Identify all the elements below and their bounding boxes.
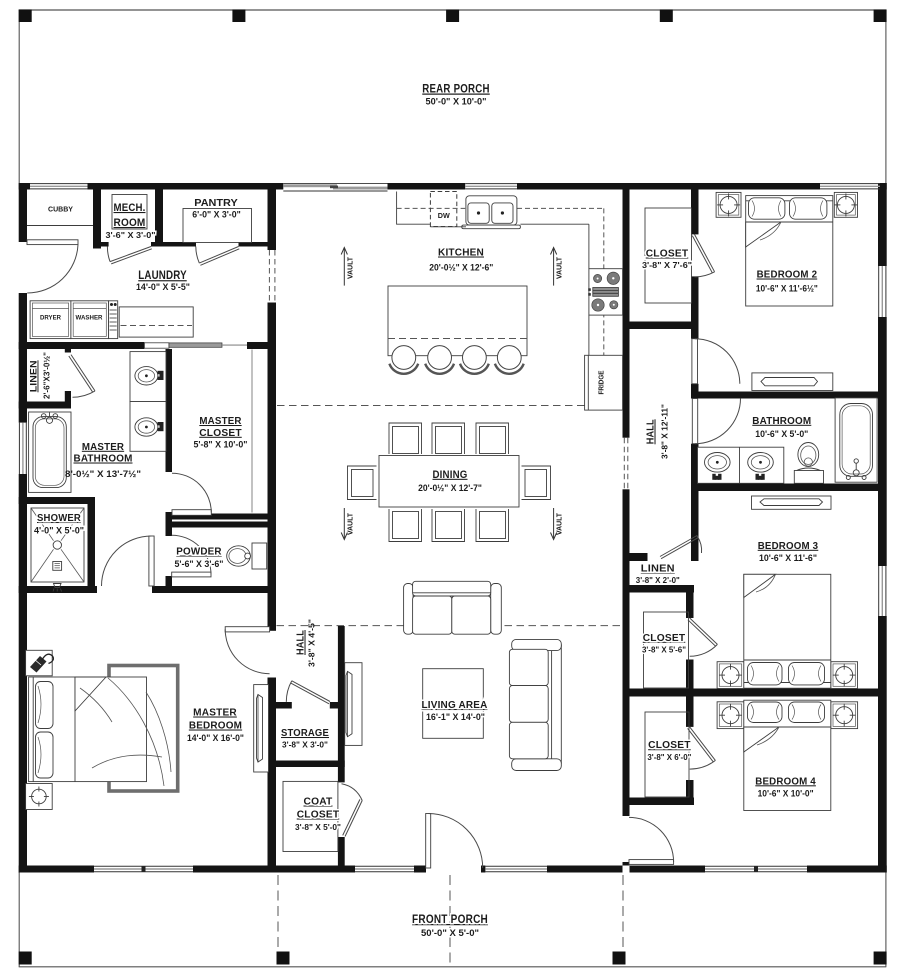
svg-text:2'-6"X3'-0½": 2'-6"X3'-0½"	[43, 352, 52, 399]
svg-text:20'-0½" X 12'-6": 20'-0½" X 12'-6"	[429, 263, 493, 273]
svg-text:BEDROOM 2: BEDROOM 2	[757, 270, 818, 281]
svg-text:STORAGE: STORAGE	[281, 728, 329, 739]
svg-text:CLOSET: CLOSET	[648, 740, 691, 751]
svg-text:14'-0" X 5'-5": 14'-0" X 5'-5"	[136, 282, 190, 293]
svg-text:MECH.: MECH.	[114, 202, 146, 214]
svg-text:CLOSET: CLOSET	[643, 633, 686, 644]
svg-text:CLOSET: CLOSET	[297, 810, 340, 821]
svg-text:DW: DW	[438, 213, 450, 220]
svg-text:REAR PORCH: REAR PORCH	[422, 82, 490, 96]
svg-text:VAULT: VAULT	[347, 256, 354, 279]
svg-text:4'-0" X 5'-0": 4'-0" X 5'-0"	[34, 526, 84, 536]
svg-text:HALL: HALL	[646, 419, 657, 444]
svg-text:COAT: COAT	[304, 797, 333, 808]
svg-text:3'-8" X 5'-6": 3'-8" X 5'-6"	[642, 646, 686, 655]
svg-text:POWDER: POWDER	[176, 547, 222, 558]
svg-text:DRYER: DRYER	[40, 315, 61, 322]
svg-text:3'-8" X 5'-0": 3'-8" X 5'-0"	[295, 823, 341, 832]
svg-text:VAULT: VAULT	[557, 256, 564, 279]
svg-text:10'-6" X 11'-6": 10'-6" X 11'-6"	[759, 553, 817, 563]
svg-text:3'-8" X 3'-0": 3'-8" X 3'-0"	[282, 741, 328, 750]
svg-text:14'-0" X 16'-0": 14'-0" X 16'-0"	[187, 733, 244, 743]
svg-text:FRONT PORCH: FRONT PORCH	[412, 912, 488, 926]
svg-text:3'-8" X 12'-11": 3'-8" X 12'-11"	[661, 404, 670, 459]
svg-text:3'-8" X 6'-0": 3'-8" X 6'-0"	[647, 753, 691, 762]
svg-text:LINEN: LINEN	[641, 564, 675, 575]
svg-text:VAULT: VAULT	[557, 512, 564, 535]
svg-text:BEDROOM 4: BEDROOM 4	[755, 776, 816, 787]
svg-text:PANTRY: PANTRY	[194, 198, 238, 209]
svg-text:WASHER: WASHER	[76, 315, 103, 322]
svg-text:5'-6" X 3'-6": 5'-6" X 3'-6"	[175, 559, 224, 569]
svg-text:8'-0½" X 13'-7½": 8'-0½" X 13'-7½"	[65, 469, 141, 479]
svg-text:10'-6" X 11'-6½": 10'-6" X 11'-6½"	[756, 284, 818, 294]
svg-text:16'-1" X 14'-0": 16'-1" X 14'-0"	[426, 712, 485, 722]
svg-text:3'-8" X 7'-6": 3'-8" X 7'-6"	[642, 261, 692, 270]
svg-text:CLOSET: CLOSET	[199, 428, 242, 439]
svg-text:10'-6" X 10'-0": 10'-6" X 10'-0"	[758, 789, 814, 799]
svg-text:50'-0" X 5'-0": 50'-0" X 5'-0"	[421, 928, 479, 939]
svg-text:FRIDGE: FRIDGE	[599, 370, 606, 394]
svg-text:MASTER: MASTER	[199, 416, 242, 427]
svg-text:HALL: HALL	[296, 630, 307, 655]
svg-text:ROOM: ROOM	[114, 217, 146, 229]
svg-text:5'-8" X 10'-0": 5'-8" X 10'-0"	[194, 440, 248, 450]
svg-text:50'-0" X 10'-0": 50'-0" X 10'-0"	[426, 96, 487, 107]
svg-text:20'-0½" X 12'-7": 20'-0½" X 12'-7"	[418, 483, 482, 493]
svg-text:LINEN: LINEN	[29, 360, 40, 392]
svg-text:LAUNDRY: LAUNDRY	[138, 270, 187, 282]
svg-text:BEDROOM 3: BEDROOM 3	[758, 541, 819, 552]
svg-text:3'-8" X 2'-0": 3'-8" X 2'-0"	[636, 576, 680, 585]
svg-text:3'-8" X 4'-5": 3'-8" X 4'-5"	[308, 619, 317, 667]
svg-text:3'-6" X 3'-0": 3'-6" X 3'-0"	[106, 231, 156, 240]
svg-text:10'-6" X 5'-0": 10'-6" X 5'-0"	[755, 429, 808, 439]
svg-text:MASTER: MASTER	[82, 442, 125, 453]
svg-text:SHOWER: SHOWER	[37, 513, 81, 524]
svg-text:DINING: DINING	[433, 469, 468, 481]
svg-text:BATHROOM: BATHROOM	[74, 454, 133, 465]
svg-text:BEDROOM: BEDROOM	[189, 721, 242, 732]
svg-text:CLOSET: CLOSET	[646, 249, 689, 260]
svg-text:6'-0" X 3'-0": 6'-0" X 3'-0"	[192, 210, 241, 220]
svg-text:BATHROOM: BATHROOM	[752, 416, 811, 427]
svg-text:MASTER: MASTER	[193, 708, 237, 719]
svg-text:LIVING AREA: LIVING AREA	[422, 700, 488, 711]
svg-text:VAULT: VAULT	[347, 512, 354, 535]
svg-text:CUBBY: CUBBY	[48, 207, 73, 214]
svg-text:KITCHEN: KITCHEN	[438, 248, 484, 259]
